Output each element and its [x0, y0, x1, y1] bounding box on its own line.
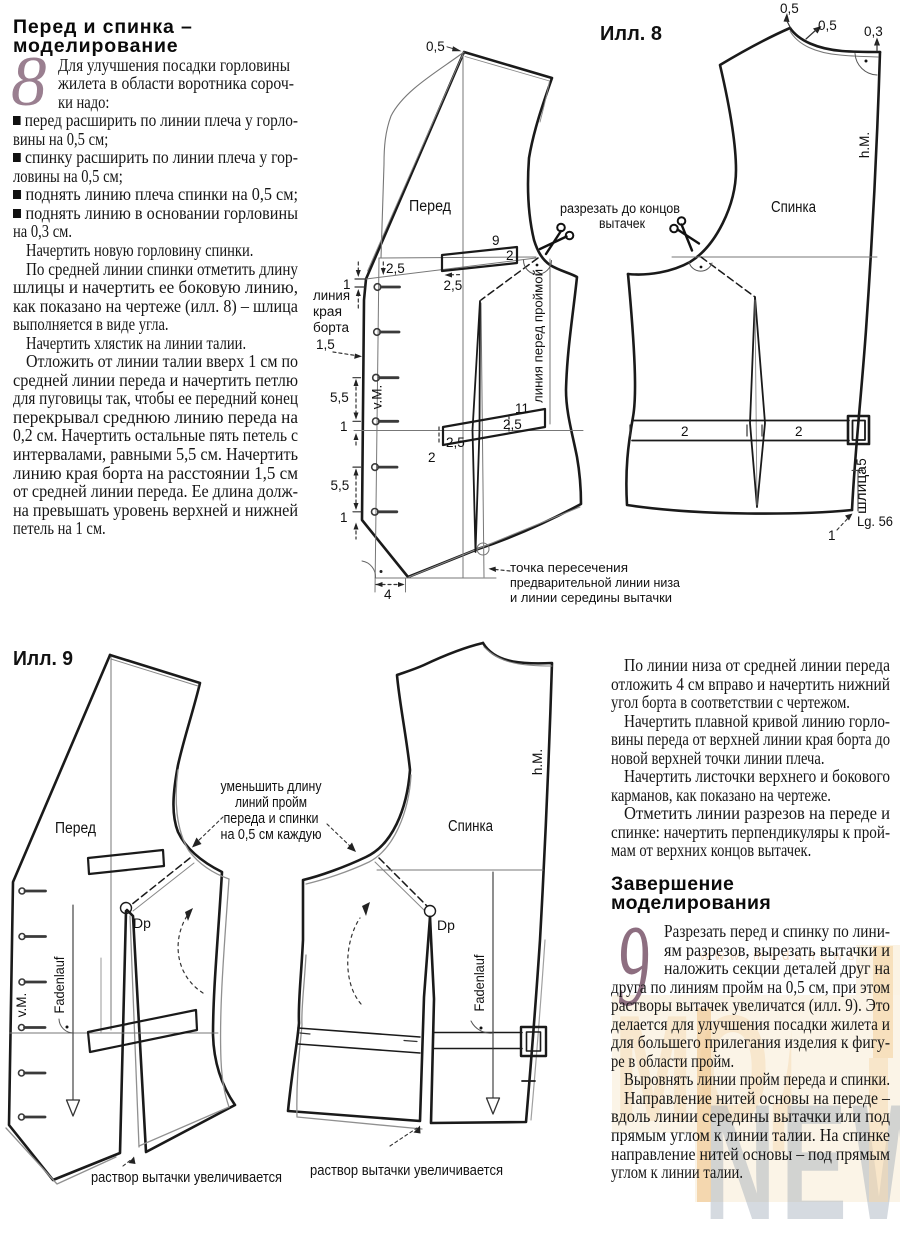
svg-text:0,5: 0,5 [780, 1, 799, 16]
svg-text:раствор вытачки увеличивается: раствор вытачки увеличивается [91, 1170, 282, 1186]
svg-text:5: 5 [854, 458, 869, 466]
svg-text:1: 1 [340, 419, 348, 434]
svg-text:Dp: Dp [437, 917, 455, 933]
svg-text:5,5: 5,5 [331, 478, 350, 493]
svg-text:2,5: 2,5 [386, 261, 405, 276]
svg-text:5,5: 5,5 [330, 390, 349, 405]
svg-text:и линии середины вытачки: и линии середины вытачки [510, 590, 672, 605]
svg-text:разрезать до концов: разрезать до концов [560, 201, 680, 216]
svg-text:края: края [313, 304, 342, 319]
svg-text:на 0,5 см каждую: на 0,5 см каждую [221, 827, 322, 843]
svg-text:Спинка: Спинка [771, 199, 816, 216]
svg-text:линия перед проймой: линия перед проймой [531, 269, 546, 403]
svg-text:Илл. 8: Илл. 8 [600, 22, 662, 45]
svg-text:Перед: Перед [55, 820, 96, 837]
svg-text:1: 1 [828, 528, 836, 543]
svg-text:0,5: 0,5 [818, 18, 837, 33]
svg-text:4: 4 [384, 587, 392, 602]
svg-text:Dp: Dp [133, 915, 151, 931]
svg-text:Fadenlauf: Fadenlauf [52, 956, 67, 1013]
svg-text:v.M.: v.M. [14, 993, 29, 1018]
svg-text:2: 2 [795, 424, 803, 439]
svg-text:точка пересечения: точка пересечения [510, 560, 628, 575]
svg-text:v.M.: v.M. [370, 385, 385, 410]
svg-text:борта: борта [313, 320, 349, 335]
svg-text:0,5: 0,5 [426, 39, 445, 54]
svg-text:1: 1 [340, 510, 348, 525]
svg-text:9: 9 [492, 233, 500, 248]
svg-text:Fadenlauf: Fadenlauf [472, 954, 487, 1011]
svg-text:2: 2 [428, 450, 436, 465]
svg-text:h.M.: h.M. [857, 132, 872, 158]
svg-text:0,3: 0,3 [864, 24, 883, 39]
svg-text:2,5: 2,5 [444, 278, 463, 293]
svg-text:Lg. 56: Lg. 56 [857, 514, 893, 529]
svg-text:вытачек: вытачек [599, 216, 645, 231]
svg-text:2: 2 [506, 248, 514, 263]
svg-text:Илл. 9: Илл. 9 [13, 647, 73, 670]
svg-text:11: 11 [515, 401, 529, 416]
svg-text:1,5: 1,5 [316, 337, 335, 352]
svg-text:шлица: шлица [854, 465, 869, 514]
svg-text:h.M.: h.M. [530, 749, 545, 775]
svg-text:Спинка: Спинка [448, 818, 493, 835]
svg-text:линий пройм: линий пройм [235, 795, 307, 811]
svg-text:переда и спинки: переда и спинки [224, 811, 319, 827]
svg-text:уменьшить длину: уменьшить длину [221, 779, 323, 795]
svg-text:Перед: Перед [409, 198, 451, 215]
svg-text:раствор вытачки увеличивается: раствор вытачки увеличивается [310, 1163, 503, 1179]
svg-text:предварительной линии низа: предварительной линии низа [510, 575, 681, 590]
svg-text:2,5: 2,5 [446, 435, 465, 450]
svg-text:2,5: 2,5 [503, 417, 522, 432]
svg-text:2: 2 [681, 424, 689, 439]
svg-text:линия: линия [313, 288, 350, 303]
